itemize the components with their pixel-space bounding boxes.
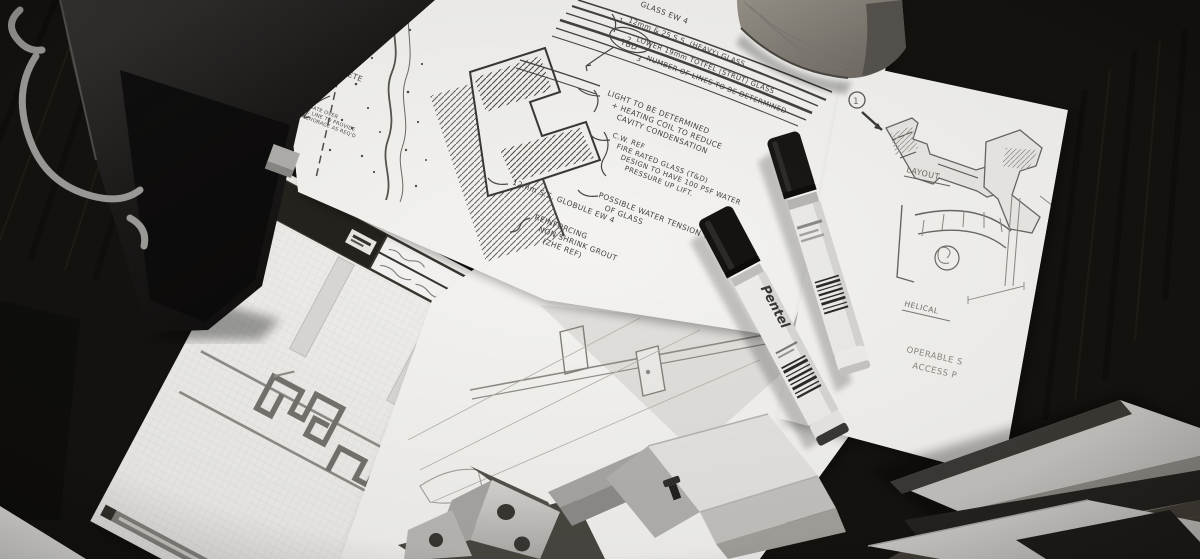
desk-photo-scene: 1.5mm ALUMINUM [0, 0, 1200, 559]
scene-svg: 1.5mm ALUMINUM [0, 0, 1200, 559]
vignette-overlay [0, 0, 1200, 559]
